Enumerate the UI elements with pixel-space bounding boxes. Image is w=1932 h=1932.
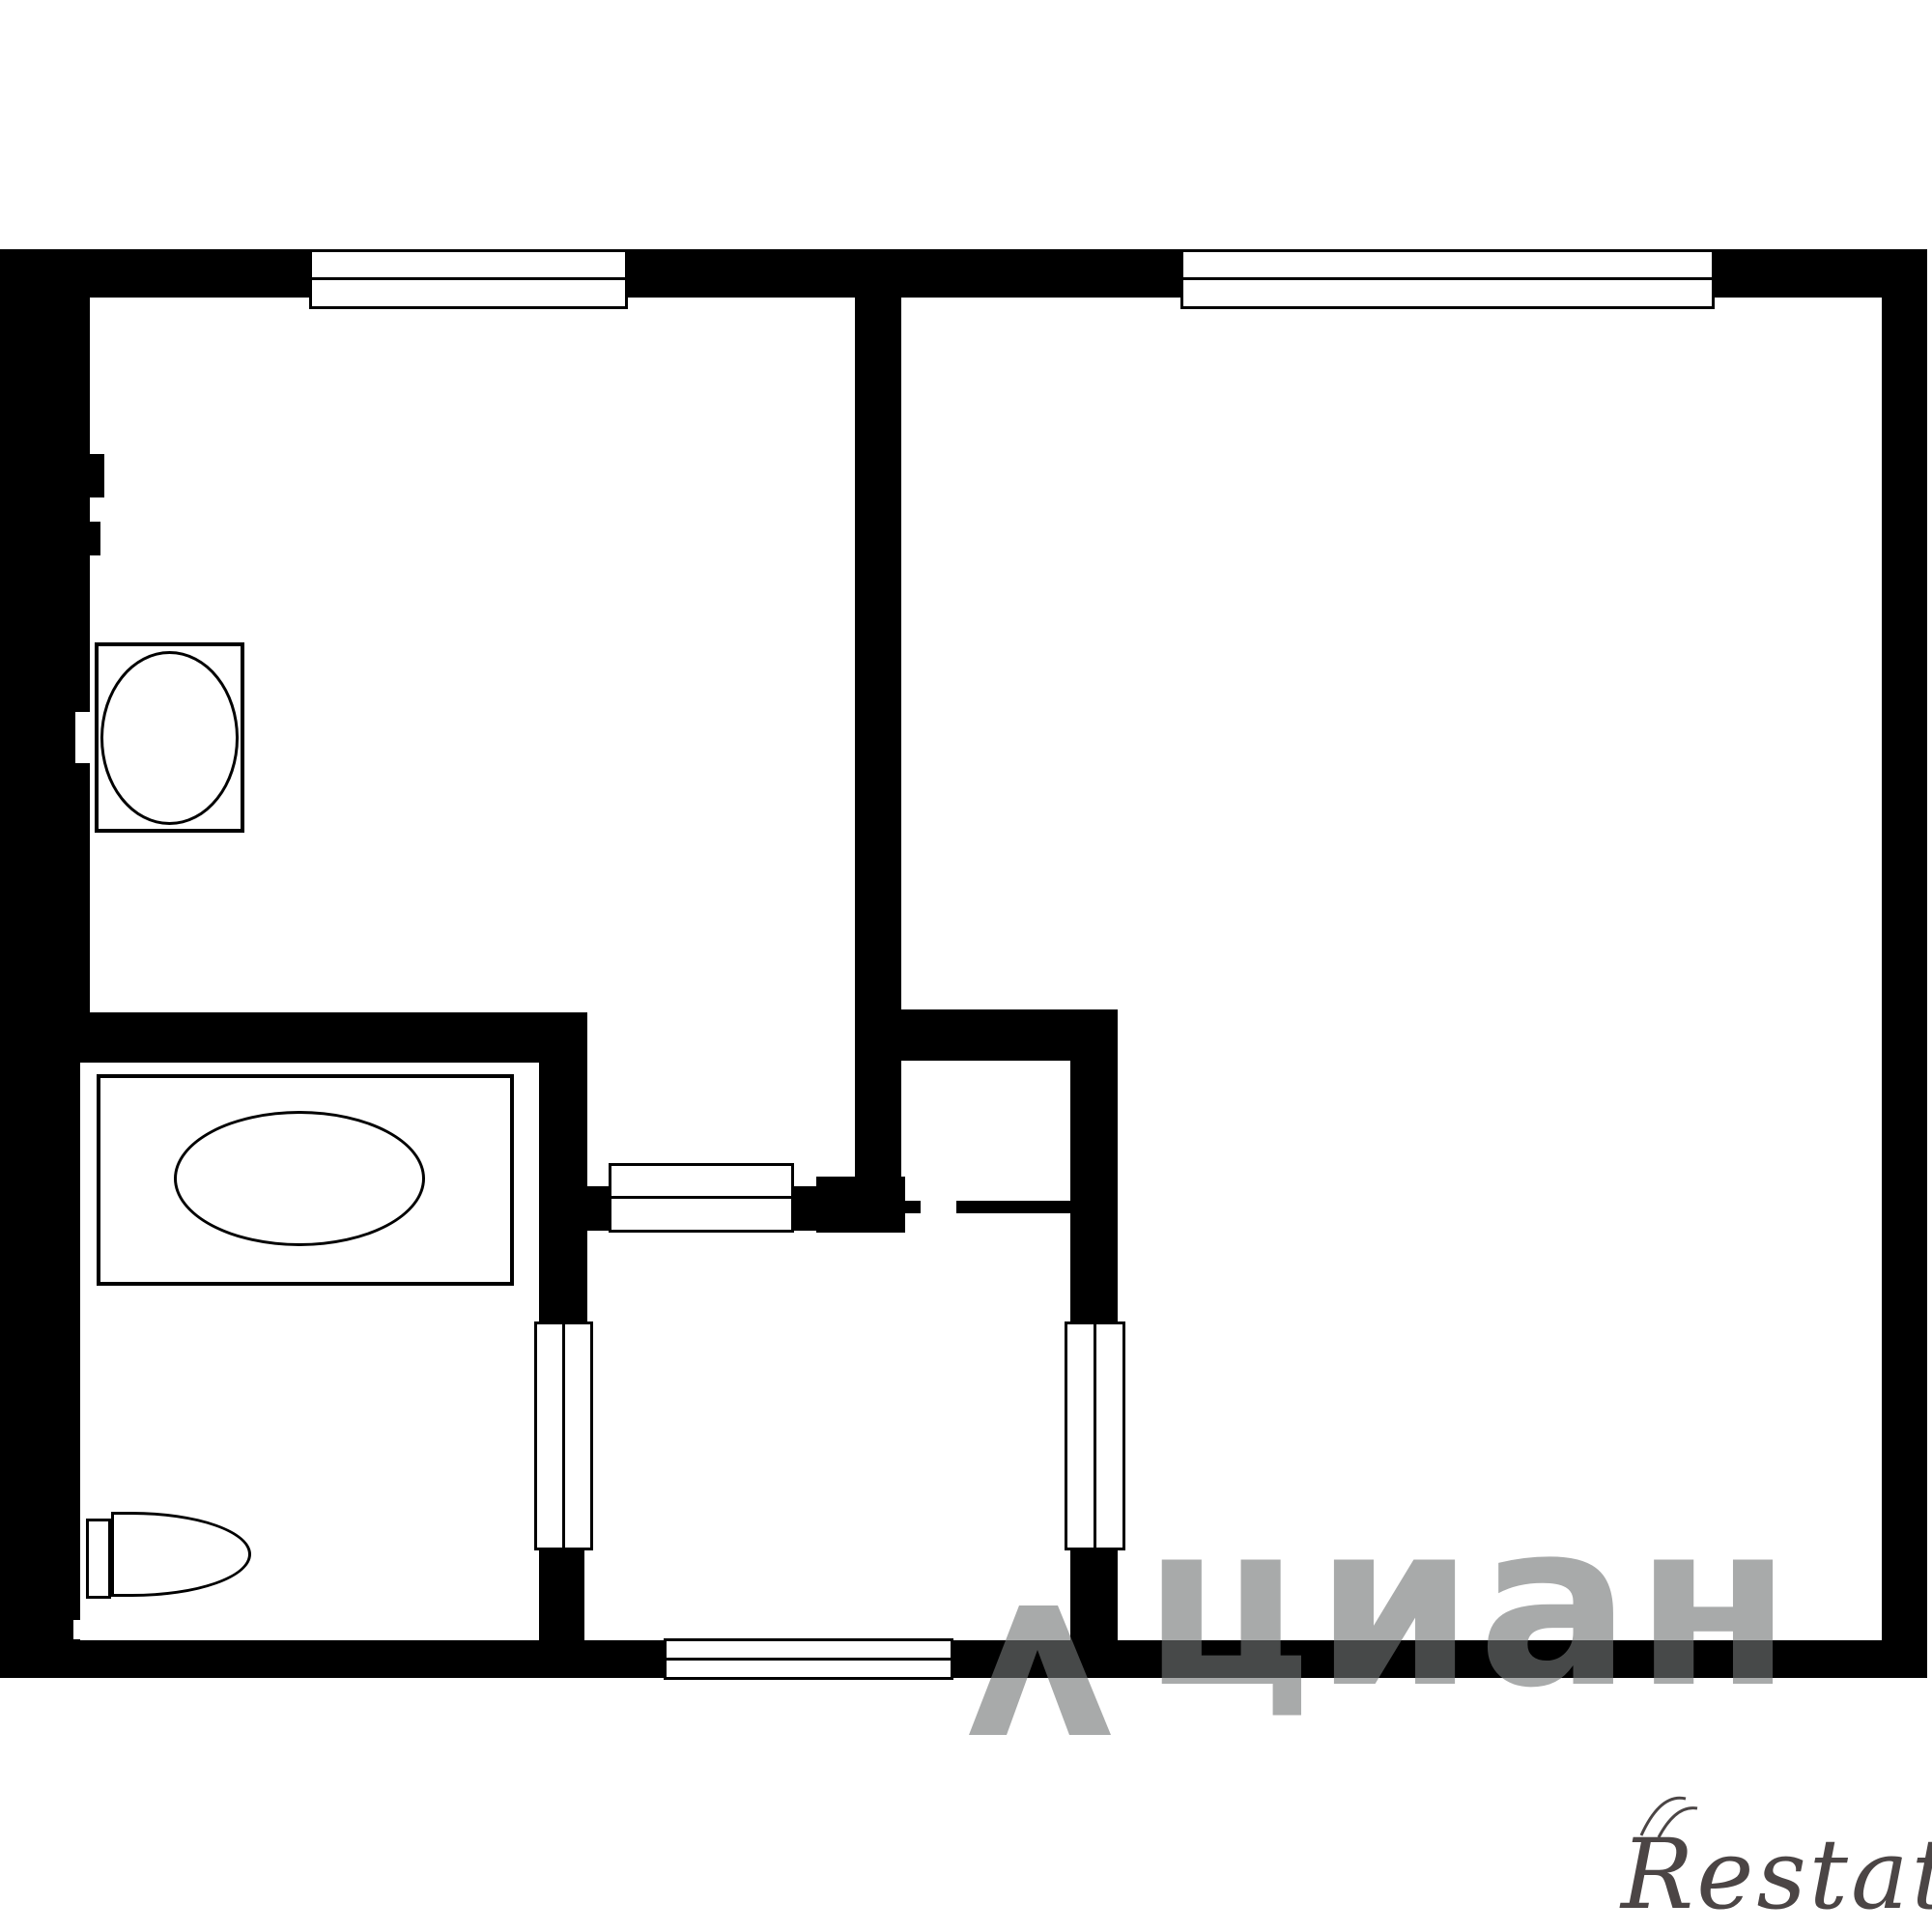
wall-outer-left-lower [0,1063,80,1678]
restate-watermark-text: Restate [1621,1818,1932,1931]
door-leaf-line [611,1196,792,1199]
window-top-left-icon [309,249,628,309]
window-pane-line [311,277,626,280]
toilet-tank-icon [86,1519,111,1599]
wall-bathroom-right [539,1012,587,1321]
cian-watermark-text: циан [1143,1492,1796,1719]
wall-bathroom-top [90,1012,587,1063]
closet-bottom-line-right [956,1201,1070,1213]
wall-outer-right [1882,249,1927,1678]
wall-closet-right [1070,1009,1118,1321]
cian-watermark: циан [961,1492,1831,1744]
wall-notch-upper [75,712,90,763]
restate-watermark: Restate [1621,1824,1932,1925]
wall-outer-left-upper [0,249,90,1063]
stove-burner-oval-icon [100,651,239,825]
wall-bathroom-right-stub [539,1550,584,1640]
map-pin-icon [961,1544,1116,1771]
floorplan-canvas: циан Restate [0,0,1932,1932]
entry-door-icon [664,1638,953,1680]
wall-notch-lower [73,1620,80,1639]
wall-radiator-bump-lower [90,522,100,555]
window-pane-line [1182,277,1713,280]
bathroom-door-icon [534,1321,593,1550]
window-top-right-icon [1180,249,1715,309]
wall-kitchen-living-divider [855,298,901,1233]
closet-bottom-line-left [901,1201,921,1213]
door-leaf-line [666,1658,952,1661]
wall-radiator-bump-upper [90,454,104,497]
toilet-bowl-icon [111,1512,251,1597]
door-leaf-line [562,1323,565,1548]
kitchen-door-icon [609,1163,794,1233]
bathtub-basin-oval-icon [174,1111,425,1246]
